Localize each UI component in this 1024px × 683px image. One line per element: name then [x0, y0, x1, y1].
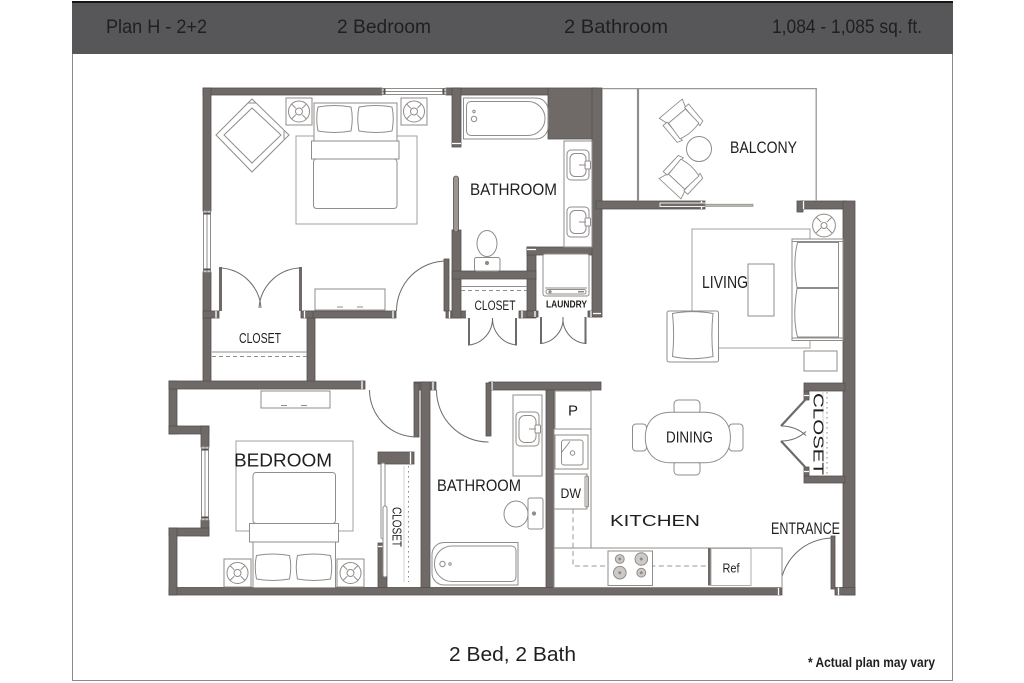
svg-text:2 Bedroom: 2 Bedroom — [337, 16, 431, 38]
svg-text:ENTRANCE: ENTRANCE — [771, 520, 840, 538]
svg-text:BEDROOM: BEDROOM — [234, 451, 332, 471]
svg-text:LIVING: LIVING — [702, 272, 748, 292]
svg-text:1,084 - 1,085 sq. ft.: 1,084 - 1,085 sq. ft. — [772, 16, 922, 38]
svg-text:CLOSET: CLOSET — [239, 331, 281, 347]
svg-text:Ref: Ref — [723, 561, 740, 576]
svg-text:Plan H - 2+2: Plan H - 2+2 — [106, 16, 207, 38]
svg-text:DINING: DINING — [666, 430, 713, 447]
svg-text:* Actual plan may vary: * Actual plan may vary — [808, 654, 935, 670]
svg-text:DW: DW — [561, 485, 582, 501]
svg-text:CLOSET: CLOSET — [810, 393, 826, 475]
svg-text:CLOSET: CLOSET — [475, 298, 516, 313]
svg-text:BALCONY: BALCONY — [730, 138, 797, 157]
svg-text:P: P — [568, 403, 578, 420]
svg-text:KITCHEN: KITCHEN — [610, 513, 700, 530]
svg-text:BATHROOM: BATHROOM — [437, 477, 521, 495]
svg-text:2 Bed, 2 Bath: 2 Bed, 2 Bath — [449, 643, 576, 666]
svg-text:LAUNDRY: LAUNDRY — [546, 299, 587, 311]
svg-text:2 Bathroom: 2 Bathroom — [564, 16, 668, 38]
svg-text:CLOSET: CLOSET — [390, 507, 404, 547]
svg-text:BATHROOM: BATHROOM — [470, 180, 557, 199]
